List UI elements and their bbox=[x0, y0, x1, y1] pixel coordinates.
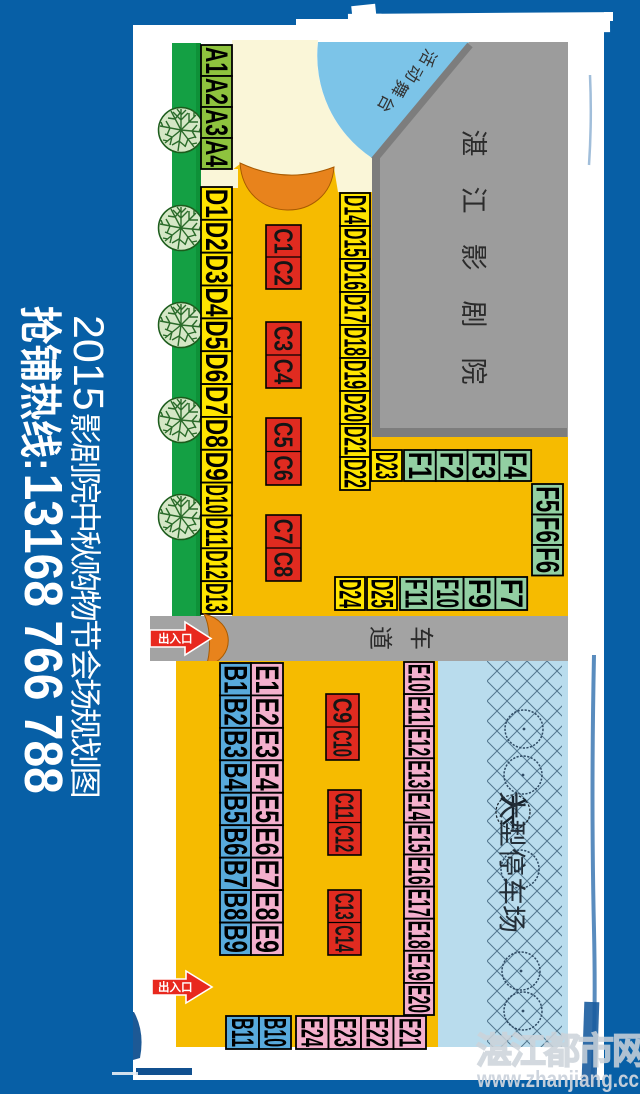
svg-text:出入口: 出入口 bbox=[158, 632, 193, 646]
svg-text:D5: D5 bbox=[199, 320, 234, 349]
svg-text:D22: D22 bbox=[338, 459, 373, 488]
svg-text:F10: F10 bbox=[430, 579, 465, 608]
svg-text:C14: C14 bbox=[330, 925, 359, 952]
svg-text:道: 道 bbox=[366, 626, 393, 650]
svg-text:江: 江 bbox=[458, 187, 488, 214]
svg-text:A3: A3 bbox=[199, 109, 234, 136]
svg-text:车: 车 bbox=[496, 877, 527, 905]
svg-text:E14: E14 bbox=[402, 792, 437, 820]
svg-text:D8: D8 bbox=[199, 419, 234, 448]
svg-text:E1: E1 bbox=[248, 665, 284, 693]
svg-text:E11: E11 bbox=[402, 696, 437, 724]
svg-text:E8: E8 bbox=[248, 892, 284, 920]
svg-text:D23: D23 bbox=[369, 452, 404, 479]
svg-text:E22: E22 bbox=[360, 1018, 395, 1047]
svg-text:C1: C1 bbox=[269, 228, 298, 254]
svg-text:停: 停 bbox=[496, 848, 527, 876]
svg-text:E24: E24 bbox=[295, 1018, 330, 1047]
svg-text:C7: C7 bbox=[269, 519, 298, 545]
svg-text:F7: F7 bbox=[494, 579, 529, 608]
svg-text:D21: D21 bbox=[338, 426, 373, 455]
svg-text:A1: A1 bbox=[199, 47, 234, 74]
svg-text:C4: C4 bbox=[269, 359, 298, 385]
svg-text:E12: E12 bbox=[402, 728, 437, 756]
svg-text:E3: E3 bbox=[248, 730, 284, 758]
svg-text:A2: A2 bbox=[199, 78, 234, 105]
svg-text:大: 大 bbox=[496, 791, 527, 819]
svg-text:C10: C10 bbox=[328, 730, 357, 757]
svg-text:F6: F6 bbox=[528, 517, 564, 543]
svg-text:车: 车 bbox=[407, 626, 434, 650]
svg-text:E17: E17 bbox=[402, 889, 437, 917]
svg-text:D24: D24 bbox=[333, 579, 368, 608]
svg-text:E5: E5 bbox=[248, 795, 284, 823]
svg-text:C5: C5 bbox=[269, 422, 298, 448]
svg-text:型: 型 bbox=[496, 819, 527, 847]
svg-text:出入口: 出入口 bbox=[158, 980, 193, 994]
svg-text:C3: C3 bbox=[269, 326, 298, 352]
svg-text:D2: D2 bbox=[199, 222, 234, 251]
svg-text:E2: E2 bbox=[248, 698, 284, 726]
svg-text:D9: D9 bbox=[199, 452, 234, 481]
svg-text:C13: C13 bbox=[330, 893, 359, 920]
svg-text:D6: D6 bbox=[199, 353, 234, 382]
svg-text:F6: F6 bbox=[528, 547, 564, 573]
svg-text:D1: D1 bbox=[199, 189, 234, 218]
svg-text:D19: D19 bbox=[338, 360, 373, 389]
svg-text:E15: E15 bbox=[402, 825, 437, 853]
svg-text:E20: E20 bbox=[402, 985, 437, 1013]
svg-text:D11: D11 bbox=[199, 517, 234, 546]
svg-text:D18: D18 bbox=[338, 327, 373, 356]
svg-text:B11: B11 bbox=[225, 1018, 260, 1047]
svg-text:D3: D3 bbox=[199, 255, 234, 284]
svg-text:E10: E10 bbox=[402, 664, 437, 692]
svg-text:D7: D7 bbox=[199, 386, 234, 415]
svg-text:F11: F11 bbox=[399, 579, 434, 608]
svg-text:D12: D12 bbox=[199, 550, 234, 579]
svg-text:院: 院 bbox=[458, 358, 488, 385]
svg-text:D20: D20 bbox=[338, 393, 373, 422]
svg-text:E23: E23 bbox=[327, 1018, 362, 1047]
svg-text:D25: D25 bbox=[365, 579, 400, 608]
svg-text:E19: E19 bbox=[402, 953, 437, 981]
svg-text:F9: F9 bbox=[462, 579, 497, 608]
svg-text:C2: C2 bbox=[269, 260, 298, 286]
svg-text:A4: A4 bbox=[199, 140, 234, 168]
svg-text:影: 影 bbox=[458, 244, 488, 271]
svg-text:C6: C6 bbox=[269, 455, 298, 481]
svg-text:D4: D4 bbox=[199, 288, 234, 318]
svg-text:D13: D13 bbox=[199, 583, 234, 612]
svg-text:D15: D15 bbox=[338, 228, 373, 257]
svg-text:D16: D16 bbox=[338, 261, 373, 290]
svg-text:D14: D14 bbox=[338, 195, 373, 224]
svg-text:E6: E6 bbox=[248, 827, 284, 855]
svg-text:B10: B10 bbox=[258, 1018, 293, 1047]
svg-text:C12: C12 bbox=[330, 825, 359, 852]
svg-text:E9: E9 bbox=[248, 925, 284, 953]
svg-text:E13: E13 bbox=[402, 760, 437, 788]
svg-text:E16: E16 bbox=[402, 857, 437, 885]
svg-text:湛: 湛 bbox=[458, 130, 488, 157]
svg-text:F4: F4 bbox=[496, 452, 532, 479]
svg-text:E21: E21 bbox=[392, 1018, 427, 1047]
svg-text:剧: 剧 bbox=[458, 301, 488, 328]
svg-text:E4: E4 bbox=[248, 763, 284, 791]
svg-text:E18: E18 bbox=[402, 921, 437, 949]
svg-text:C8: C8 bbox=[269, 552, 298, 578]
svg-text:C11: C11 bbox=[330, 793, 359, 820]
svg-text:C9: C9 bbox=[328, 698, 357, 724]
svg-text:E7: E7 bbox=[248, 860, 284, 888]
svg-text:湛江都市网: 湛江都市网 bbox=[476, 1031, 640, 1071]
svg-text:D10: D10 bbox=[199, 485, 234, 514]
svg-text:场: 场 bbox=[496, 905, 527, 933]
svg-text:F5: F5 bbox=[528, 486, 564, 512]
svg-text:D17: D17 bbox=[338, 294, 373, 323]
svg-text:www.zhanjiang.cc: www.zhanjiang.cc bbox=[476, 1066, 639, 1092]
